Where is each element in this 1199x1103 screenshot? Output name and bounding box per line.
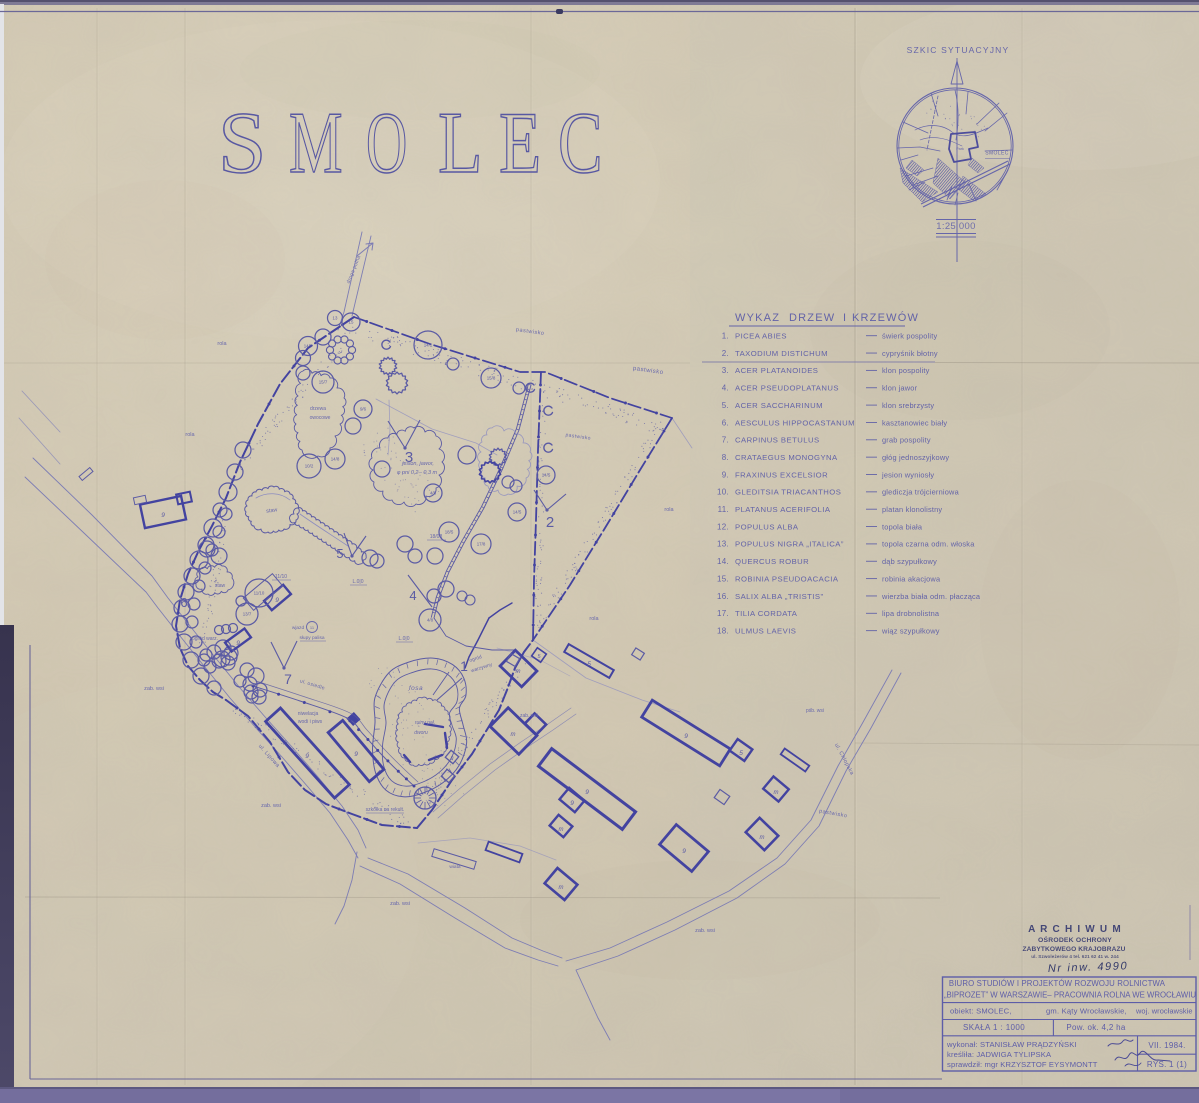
svg-text:WYKAZ: WYKAZ: [735, 312, 780, 324]
svg-text:m: m: [516, 669, 521, 675]
svg-text:ZABYTKOWEGO KRAJOBRAZU: ZABYTKOWEGO KRAJOBRAZU: [1023, 946, 1126, 953]
svg-text:9: 9: [161, 512, 165, 519]
svg-text:9.: 9.: [722, 470, 729, 479]
svg-text:szkółka na rekult.: szkółka na rekult.: [366, 807, 405, 813]
svg-text:BIURO STUDIÓW I PROJEKTÓW: BIURO STUDIÓW I PROJEKTÓW ROZWOJU ROLNIC…: [949, 979, 1166, 988]
svg-text:topola biała: topola biała: [882, 522, 923, 531]
svg-text:4: 4: [409, 588, 416, 603]
svg-text:GLEDITSIA TRIACANTHOS: GLEDITSIA TRIACANTHOS: [735, 488, 841, 497]
svg-text:robinia akacjowa: robinia akacjowa: [882, 574, 941, 583]
svg-text:5: 5: [587, 661, 591, 668]
svg-text:11/10: 11/10: [275, 574, 287, 580]
svg-text:kreśliła: JADWIGA TYLIPSKA: kreśliła: JADWIGA TYLIPSKA: [947, 1050, 1052, 1059]
svg-text:ACER PSEUDOPLATANUS: ACER PSEUDOPLATANUS: [735, 384, 839, 393]
svg-text:12.: 12.: [717, 522, 729, 531]
svg-text:15/7: 15/7: [319, 380, 328, 385]
svg-text:lipa drobnolistna: lipa drobnolistna: [882, 609, 940, 618]
svg-text:klon pospolity: klon pospolity: [882, 366, 930, 375]
svg-text:CARPINUS BETULUS: CARPINUS BETULUS: [735, 436, 820, 445]
svg-text:dąb szypułkowy: dąb szypułkowy: [882, 557, 937, 566]
svg-text:7: 7: [284, 671, 292, 687]
svg-text:DRZEW: DRZEW: [789, 312, 835, 324]
svg-text:gm. Kąty Wrocławskie,: gm. Kąty Wrocławskie,: [1046, 1007, 1127, 1016]
svg-text:rola: rola: [664, 507, 674, 513]
svg-text:fosa: fosa: [409, 685, 423, 692]
svg-text:wjazd: wjazd: [292, 625, 305, 631]
svg-text:klon jawor: klon jawor: [882, 384, 918, 393]
svg-text:4/6: 4/6: [430, 491, 437, 496]
svg-text:głóg jednoszyjkowy: głóg jednoszyjkowy: [882, 453, 949, 462]
svg-text:9: 9: [682, 848, 686, 855]
svg-text:topola czarna odm. włoska: topola czarna odm. włoska: [882, 540, 975, 549]
svg-text:SALIX ALBA „TRISTIS”: SALIX ALBA „TRISTIS”: [735, 592, 823, 601]
svg-text:wykonał: STANISŁAW PRĄDZYŃSK: wykonał: STANISŁAW PRĄDZYŃSKI: [946, 1040, 1077, 1049]
svg-text:PLATANUS ACERIFOLIA: PLATANUS ACERIFOLIA: [735, 505, 831, 514]
svg-text:słupy palisa: słupy palisa: [299, 635, 324, 641]
svg-text:1: 1: [460, 658, 468, 674]
svg-text:kasztanowiec biały: kasztanowiec biały: [882, 418, 947, 427]
svg-text:2.: 2.: [722, 349, 729, 358]
svg-text:17.: 17.: [717, 609, 729, 618]
svg-text:4.: 4.: [722, 384, 729, 393]
svg-text:3.: 3.: [722, 366, 729, 375]
svg-text:I: I: [843, 312, 847, 324]
svg-text:CRATAEGUS MONOGYNA: CRATAEGUS MONOGYNA: [735, 453, 838, 462]
svg-text:6: 6: [180, 595, 187, 610]
svg-text:2: 2: [546, 514, 554, 531]
svg-text:jesion, jawor,: jesion, jawor,: [401, 461, 434, 467]
svg-text:9: 9: [570, 800, 574, 807]
svg-text:platan klonolistny: platan klonolistny: [882, 505, 942, 514]
svg-text:QUERCUS ROBUR: QUERCUS ROBUR: [735, 557, 809, 566]
svg-text:18/5: 18/5: [445, 530, 454, 535]
svg-text:1.: 1.: [722, 332, 729, 341]
svg-text:świerk pospolity: świerk pospolity: [882, 332, 937, 341]
svg-text:18.: 18.: [717, 626, 729, 635]
svg-text:rola: rola: [185, 432, 195, 438]
svg-text:11/10: 11/10: [254, 591, 265, 596]
svg-text:14/7: 14/7: [304, 344, 313, 349]
svg-text:10.: 10.: [717, 488, 729, 497]
svg-text:sprawdził: mgr KRZYSZTOF EYSY: sprawdził: mgr KRZYSZTOF EYSYMONTT: [947, 1060, 1098, 1069]
svg-text:1:25 000: 1:25 000: [936, 221, 975, 232]
svg-text:9: 9: [451, 756, 454, 762]
svg-text:wodi i piws: wodi i piws: [298, 719, 323, 725]
svg-text:OŚRODEK OCHRONY: OŚRODEK OCHRONY: [1038, 935, 1112, 944]
svg-text:obiekt: SMOLEC,: obiekt: SMOLEC,: [950, 1007, 1012, 1016]
svg-text:woj. wrocławskie: woj. wrocławskie: [1135, 1007, 1193, 1016]
svg-text:8.: 8.: [722, 453, 729, 462]
svg-text:POPULUS NIGRA „ITALICA”: POPULUS NIGRA „ITALICA”: [735, 540, 844, 549]
svg-text:zab. wsi: zab. wsi: [695, 928, 715, 934]
svg-text:15/8: 15/8: [487, 376, 496, 381]
svg-text:10/2: 10/2: [305, 464, 314, 469]
svg-text:5: 5: [336, 546, 343, 561]
svg-text:9: 9: [354, 751, 358, 758]
svg-text:ACER SACCHARINUM: ACER SACCHARINUM: [735, 401, 823, 410]
svg-text:POPULUS ALBA: POPULUS ALBA: [735, 522, 799, 531]
svg-text:9: 9: [585, 789, 589, 796]
svg-text:rola: rola: [589, 616, 599, 622]
svg-text:zab. wsi: zab. wsi: [390, 901, 410, 907]
svg-text:glediczja trójcierniowa: glediczja trójcierniowa: [882, 488, 960, 497]
svg-text:ul. Szwoleżerów 4 tel. 621 6: ul. Szwoleżerów 4 tel. 621 62 41 w. 244: [1031, 954, 1119, 959]
svg-text:zab. wsi: zab. wsi: [261, 803, 281, 809]
svg-text:13.: 13.: [717, 540, 729, 549]
svg-text:ACER PLATANOIDES: ACER PLATANOIDES: [735, 366, 818, 375]
svg-text:m: m: [774, 790, 779, 796]
svg-text:TILIA CORDATA: TILIA CORDATA: [735, 609, 798, 618]
svg-text:13: 13: [333, 316, 338, 321]
svg-text:m: m: [559, 885, 564, 891]
svg-text:13/7: 13/7: [243, 612, 252, 617]
svg-text:4/8: 4/8: [427, 618, 434, 623]
svg-text:VII. 1984.: VII. 1984.: [1148, 1041, 1185, 1050]
svg-text:9: 9: [684, 733, 688, 740]
svg-text:5.: 5.: [722, 401, 729, 410]
svg-text:E: E: [499, 95, 541, 192]
svg-text:9: 9: [275, 597, 279, 604]
svg-text:PICEA ABIES: PICEA ABIES: [735, 332, 787, 341]
svg-text:zab. wsi: zab. wsi: [520, 713, 538, 719]
svg-text:staw: staw: [215, 583, 226, 589]
svg-text:14/2: 14/2: [424, 343, 433, 348]
svg-text:14/8: 14/8: [331, 457, 340, 462]
svg-text:14.: 14.: [717, 557, 729, 566]
svg-text:grab pospolity: grab pospolity: [882, 436, 931, 445]
svg-text:14/5: 14/5: [542, 473, 551, 478]
svg-text:6.: 6.: [722, 418, 729, 427]
svg-text:pśb. wsi: pśb. wsi: [806, 708, 824, 714]
svg-text:TAXODIUM DISTICHUM: TAXODIUM DISTICHUM: [735, 349, 828, 358]
svg-text:9/6: 9/6: [360, 407, 367, 412]
svg-text:SKAŁA 1 : 1000: SKAŁA 1 : 1000: [963, 1023, 1025, 1032]
svg-text:9: 9: [236, 640, 240, 647]
svg-text:m: m: [760, 835, 765, 841]
svg-text:dworu: dworu: [414, 730, 428, 736]
svg-text:16.: 16.: [717, 592, 729, 601]
svg-text:11.: 11.: [718, 505, 729, 514]
svg-text:wierzba biała odm. płacząca: wierzba biała odm. płacząca: [881, 592, 981, 601]
svg-text:M: M: [289, 95, 343, 192]
svg-text:7.: 7.: [722, 436, 729, 445]
svg-text:wiata: wiata: [449, 864, 461, 870]
svg-text:niwelacja: niwelacja: [298, 711, 319, 717]
svg-text:15: 15: [349, 320, 354, 325]
svg-text:cypryśnik błotny: cypryśnik błotny: [882, 349, 938, 358]
svg-text:L.0|0: L.0|0: [352, 579, 363, 585]
svg-text:O: O: [366, 95, 407, 192]
svg-text:drzewa: drzewa: [310, 406, 326, 412]
svg-text:m: m: [511, 732, 516, 738]
svg-text:A R C H I W U M: A R C H I W U M: [1028, 924, 1122, 935]
svg-text:RYS. 1 (1): RYS. 1 (1): [1147, 1060, 1187, 1069]
svg-text:C: C: [558, 93, 603, 191]
svg-text:S: S: [218, 94, 266, 191]
svg-text:17/8: 17/8: [477, 542, 486, 547]
svg-text:ogród warz.: ogród warz.: [192, 636, 218, 642]
svg-text:FRAXINUS EXCELSIOR: FRAXINUS EXCELSIOR: [735, 470, 828, 479]
svg-text:φ pni 0,2 - 0,3 m: φ pni 0,2 - 0,3 m: [397, 470, 438, 476]
svg-text:wiąz szypułkowy: wiąz szypułkowy: [881, 626, 940, 635]
svg-text:Pow. ok. 4,2 ha: Pow. ok. 4,2 ha: [1066, 1023, 1125, 1032]
svg-text:14/5: 14/5: [513, 510, 522, 515]
svg-text:L.0|0: L.0|0: [398, 636, 409, 642]
svg-text:zab. wsi: zab. wsi: [144, 686, 164, 692]
svg-text:SMOLEC: SMOLEC: [985, 151, 1009, 157]
svg-text:5: 5: [739, 750, 743, 757]
svg-text:ULMUS LAEVIS: ULMUS LAEVIS: [735, 626, 796, 635]
svg-text:owocowe: owocowe: [310, 415, 331, 421]
svg-text:„BIPROZET” W WARSZAWIE– PRAC: „BIPROZET” W WARSZAWIE– PRACOWNIA ROLNA …: [944, 991, 1196, 1000]
svg-text:18/08: 18/08: [430, 534, 443, 540]
svg-text:15.: 15.: [717, 574, 729, 583]
svg-text:SZKIC SYTUACYJNY: SZKIC SYTUACYJNY: [907, 45, 1010, 55]
svg-text:9: 9: [305, 753, 309, 760]
svg-text:ruiny pał.: ruiny pał.: [415, 720, 435, 726]
svg-text:ROBINIA PSEUDOACACIA: ROBINIA PSEUDOACACIA: [735, 574, 839, 583]
svg-text:Park: Park: [956, 147, 964, 151]
svg-text:L: L: [438, 95, 483, 192]
svg-text:m: m: [559, 827, 564, 833]
svg-text:rola: rola: [217, 341, 227, 347]
svg-text:jesion wyniosły: jesion wyniosły: [881, 470, 934, 479]
svg-text:klon srebrzysty: klon srebrzysty: [882, 401, 934, 410]
svg-text:KRZEWÓW: KRZEWÓW: [852, 311, 919, 324]
svg-text:AESCULUS HIPPOCASTANUM: AESCULUS HIPPOCASTANUM: [735, 418, 855, 427]
